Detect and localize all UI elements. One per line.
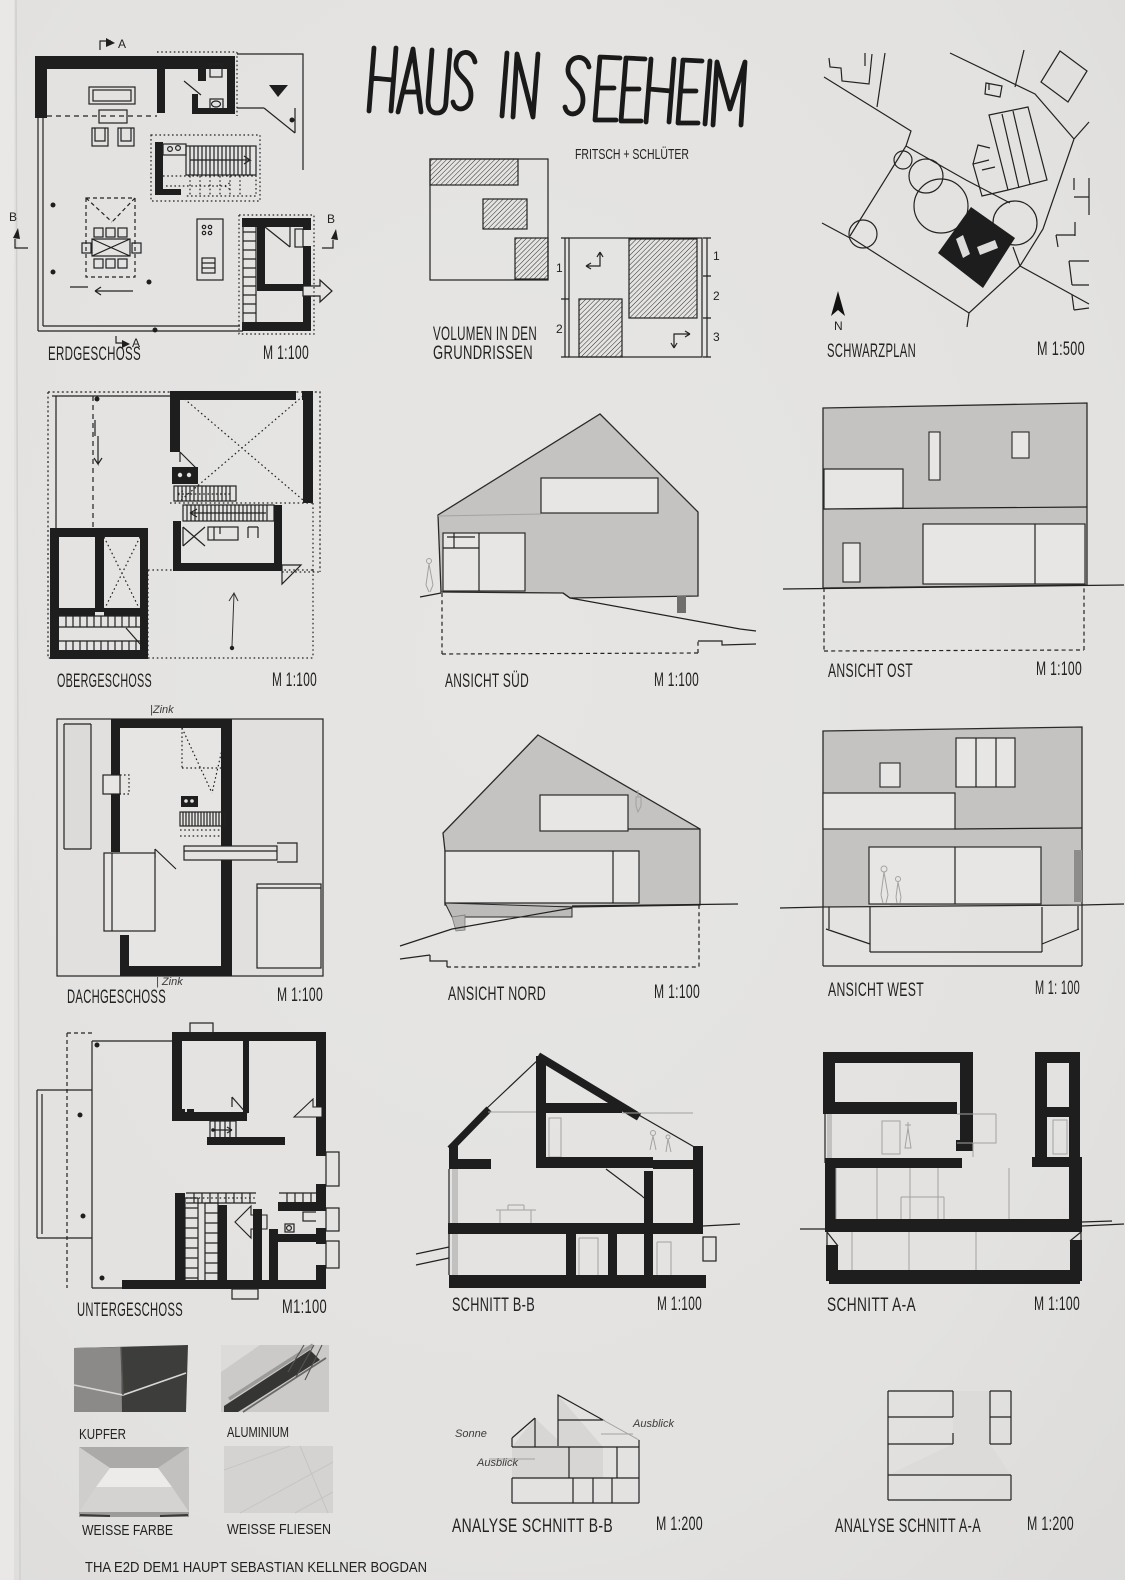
svg-text:ANSICHT SÜD: ANSICHT SÜD <box>445 671 529 692</box>
svg-text:M 1:200: M 1:200 <box>656 1514 703 1535</box>
svg-text:M 1:100: M 1:100 <box>277 985 323 1006</box>
svg-text:2: 2 <box>713 289 720 303</box>
svg-text:M 1:100: M 1:100 <box>657 1294 702 1315</box>
svg-text:1: 1 <box>556 261 563 275</box>
svg-text:ANSICHT NORD: ANSICHT NORD <box>448 984 546 1005</box>
svg-text:KUPFER: KUPFER <box>79 1426 126 1443</box>
svg-text:Ausblick: Ausblick <box>632 1418 674 1430</box>
svg-text:SCHNITT A-A: SCHNITT A-A <box>827 1295 916 1316</box>
svg-text:B: B <box>327 212 335 226</box>
svg-text:ALUMINIUM: ALUMINIUM <box>227 1424 289 1441</box>
svg-text:Sonne: Sonne <box>455 1428 487 1440</box>
svg-text:M 1:100: M 1:100 <box>263 343 309 364</box>
svg-text:M 1: 100: M 1: 100 <box>1035 978 1080 999</box>
svg-text:OBERGESCHOSS: OBERGESCHOSS <box>57 671 152 692</box>
svg-text:A: A <box>118 37 126 51</box>
svg-text:M 1:100: M 1:100 <box>654 982 700 1003</box>
svg-text:M 1:200: M 1:200 <box>1027 1514 1074 1535</box>
svg-text:|Zink: |Zink <box>150 704 174 716</box>
svg-text:M 1:100: M 1:100 <box>1034 1294 1080 1315</box>
svg-text:ANSICHT WEST: ANSICHT WEST <box>828 980 924 1001</box>
svg-text:2: 2 <box>556 322 563 336</box>
svg-text:M 1:500: M 1:500 <box>1037 339 1085 360</box>
svg-text:DACHGESCHOSS: DACHGESCHOSS <box>67 987 166 1008</box>
svg-text:ERDGESCHOSS: ERDGESCHOSS <box>48 344 141 365</box>
svg-text:M 1:100: M 1:100 <box>272 670 317 691</box>
svg-text:1: 1 <box>713 249 720 263</box>
svg-text:UNTERGESCHOSS: UNTERGESCHOSS <box>77 1300 183 1321</box>
svg-text:SCHNITT B-B: SCHNITT B-B <box>452 1295 535 1316</box>
svg-text:M 1:100: M 1:100 <box>1036 659 1082 680</box>
svg-text:WEISSE FLIESEN: WEISSE FLIESEN <box>227 1521 331 1538</box>
svg-text:ANSICHT OST: ANSICHT OST <box>828 661 913 682</box>
svg-text:ANALYSE SCHNITT A-A: ANALYSE SCHNITT A-A <box>835 1516 981 1537</box>
svg-text:SCHWARZPLAN: SCHWARZPLAN <box>827 341 916 362</box>
svg-text:B: B <box>9 210 17 224</box>
svg-text:THA E2D DEM1 HAUPT SEBASTI: THA E2D DEM1 HAUPT SEBASTIAN KELLNER BOG… <box>85 1559 427 1576</box>
svg-text:M 1:100: M 1:100 <box>654 670 699 691</box>
svg-text:ANALYSE SCHNITT B-B: ANALYSE SCHNITT B-B <box>452 1516 613 1537</box>
svg-text:VOLUMEN IN DEN: VOLUMEN IN DEN <box>433 324 537 345</box>
svg-text:N: N <box>834 319 843 333</box>
svg-text:3: 3 <box>713 330 720 344</box>
svg-text:GRUNDRISSEN: GRUNDRISSEN <box>433 343 533 364</box>
svg-text:FRITSCH + SCHLÜTER: FRITSCH + SCHLÜTER <box>575 145 689 163</box>
svg-text:M1:100: M1:100 <box>282 1297 327 1318</box>
svg-text:WEISSE FARBE: WEISSE FARBE <box>82 1522 173 1539</box>
